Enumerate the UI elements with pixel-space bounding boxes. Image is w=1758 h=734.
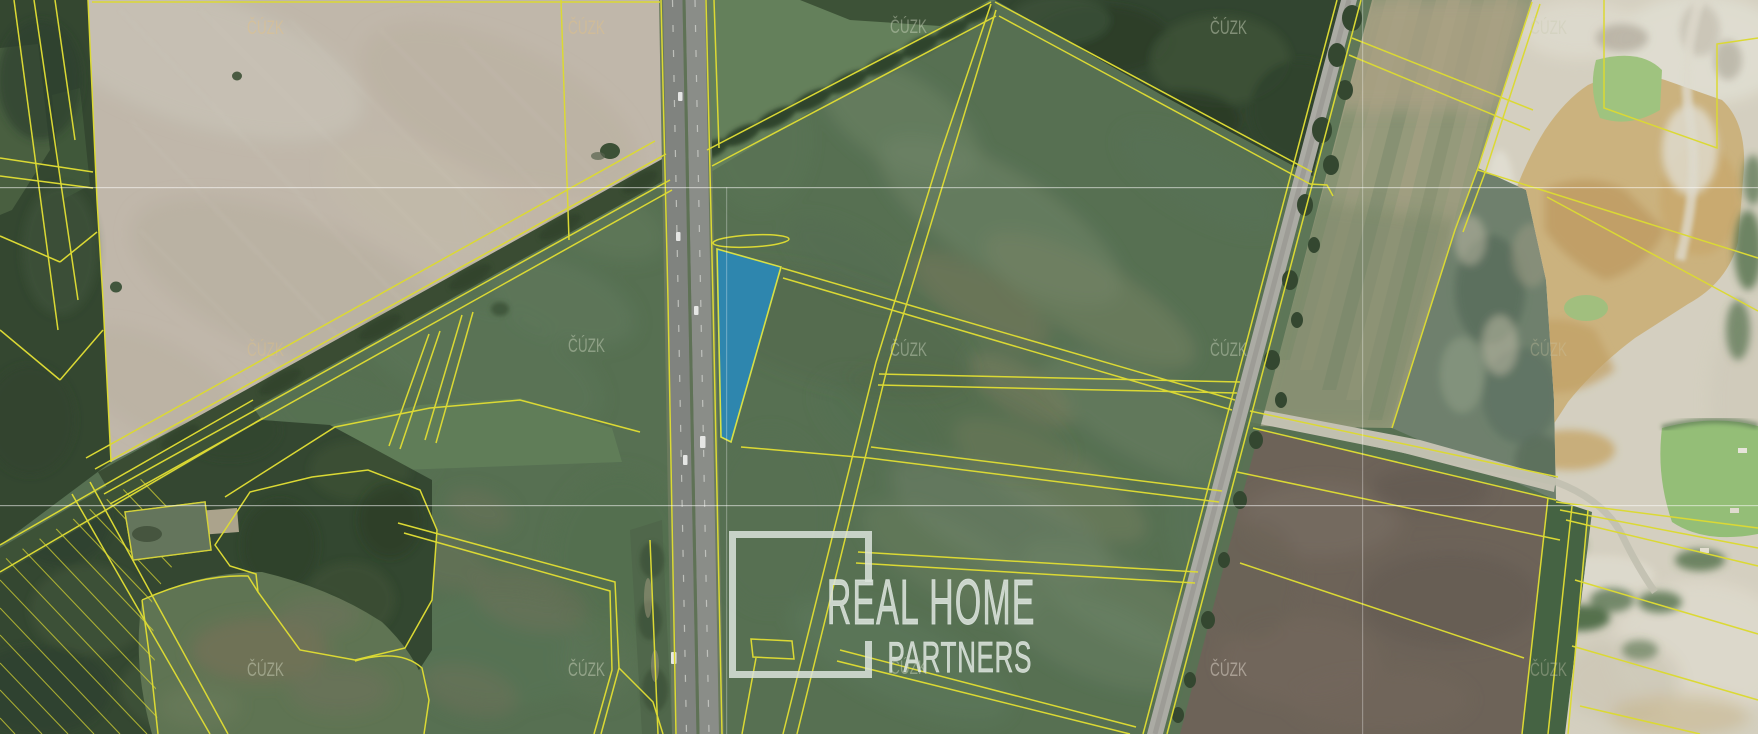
svg-text:ČÚZK: ČÚZK: [568, 335, 605, 357]
svg-text:ČÚZK: ČÚZK: [1210, 339, 1247, 361]
svg-text:ČÚZK: ČÚZK: [1210, 659, 1247, 681]
svg-text:ČÚZK: ČÚZK: [1530, 17, 1567, 39]
svg-text:ČÚZK: ČÚZK: [247, 339, 284, 361]
svg-text:ČÚZK: ČÚZK: [568, 17, 605, 39]
svg-text:ČÚZK: ČÚZK: [247, 659, 284, 681]
svg-text:ČÚZK: ČÚZK: [890, 339, 927, 361]
svg-text:ČÚZK: ČÚZK: [247, 17, 284, 39]
svg-text:ČÚZK: ČÚZK: [1530, 659, 1567, 681]
svg-text:ČÚZK: ČÚZK: [890, 16, 927, 38]
svg-text:ČÚZK: ČÚZK: [1210, 17, 1247, 39]
svg-text:ČÚZK: ČÚZK: [1530, 339, 1567, 361]
svg-text:PARTNERS: PARTNERS: [887, 632, 1032, 682]
svg-text:REAL HOME: REAL HOME: [827, 567, 1036, 638]
svg-text:ČÚZK: ČÚZK: [568, 659, 605, 681]
